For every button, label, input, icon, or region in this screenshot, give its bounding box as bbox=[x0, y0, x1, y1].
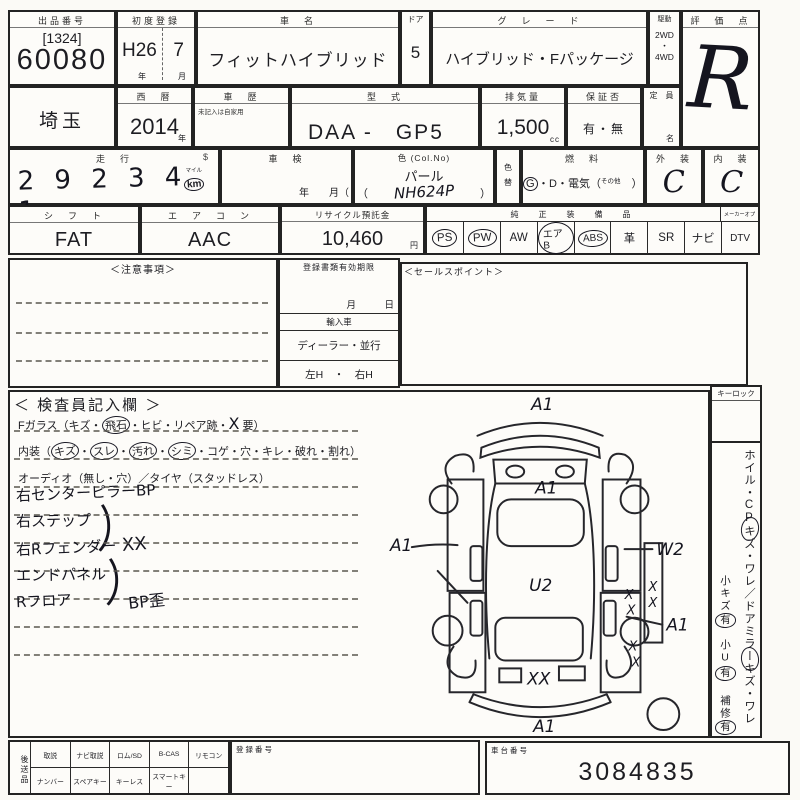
grade-value: ハイブリッド・Fパッケージ bbox=[433, 48, 646, 69]
equipment-label: 純 正 装 備 品 bbox=[427, 207, 720, 221]
interior-line-separator: ・ bbox=[317, 446, 328, 458]
grade-cell: グ レ ー ド ハイブリッド・Fパッケージ bbox=[431, 10, 648, 86]
drivetrain-2wd: 2WD bbox=[650, 30, 679, 40]
interior-damage-item: キレ bbox=[262, 446, 284, 458]
import-car-label: 輸入車 bbox=[280, 313, 398, 330]
dealer-parallel-label: ディーラー・並行 bbox=[280, 330, 398, 360]
color-label: 色 (Col.No) bbox=[355, 150, 493, 164]
body-left-edge bbox=[486, 483, 495, 658]
auction-number-label: 出品番号 bbox=[10, 12, 114, 28]
damage-note-3: 右Rフェンダー bbox=[16, 535, 117, 560]
shift-label: シ フ ト bbox=[10, 207, 138, 223]
aircon-label: エ ア コ ン bbox=[142, 207, 278, 223]
accessory-empty bbox=[188, 768, 228, 793]
headlight-right bbox=[556, 466, 574, 478]
front-bumper-outer bbox=[477, 423, 602, 436]
accessory-スマートキー: スマートキー bbox=[149, 768, 189, 793]
equipment-item-SR: SR bbox=[647, 222, 684, 254]
first-registration-cell: 初度登録 H26 7 年 月 bbox=[116, 10, 196, 86]
equipment-label: AW bbox=[510, 232, 528, 244]
first-registration-label: 初度登録 bbox=[118, 12, 194, 28]
wheel-front-right bbox=[621, 485, 649, 513]
prefecture-cell: 埼玉 bbox=[8, 86, 116, 148]
color-change-top: 色 bbox=[497, 162, 519, 173]
windshield bbox=[497, 499, 583, 546]
sales-point-box: ＜セールスポイント＞ bbox=[400, 262, 748, 386]
x-mark-quarter-1: X bbox=[628, 640, 639, 655]
interior-line-prefix: 内装（ bbox=[18, 446, 51, 458]
small-note-label: 小キズ bbox=[719, 575, 731, 613]
accessories-box: 後送品 取説ナビ取説ロム/SDB-CASリモコン ナンバースペアキーキーレススマ… bbox=[8, 740, 230, 795]
shift-cell: シ フ ト FAT bbox=[8, 205, 140, 255]
drivetrain-dot: ・ bbox=[650, 40, 679, 52]
drivetrain-4wd: 4WD bbox=[650, 52, 679, 62]
shaken-units: 年 月（ bbox=[299, 184, 349, 199]
interior-line-separator: ・ bbox=[229, 446, 240, 458]
keylock-label: キーロック bbox=[712, 387, 760, 401]
score-cell: 評 価 点 R bbox=[681, 10, 760, 148]
notice-dashed-line bbox=[16, 302, 268, 304]
fuel-gasoline-circled: G bbox=[523, 177, 539, 192]
accessory-B-CAS: B-CAS bbox=[149, 742, 189, 767]
interior-line-separator: ・ bbox=[118, 446, 129, 458]
headlight-left bbox=[506, 466, 524, 478]
notice-dashed-line bbox=[16, 332, 268, 334]
first-reg-month: 7 bbox=[173, 40, 184, 62]
year-cell: 西 暦 2014 年 bbox=[116, 86, 193, 148]
first-reg-era: H26 bbox=[122, 40, 157, 62]
car-damage-diagram: A1 A1 A1 W2 U2 A1 XX A1 X X X X X X bbox=[387, 394, 717, 738]
right-front-window-slot bbox=[606, 546, 618, 581]
x-mark-quarter-2: X bbox=[631, 655, 642, 670]
recycle-fee-unit: 円 bbox=[410, 240, 419, 251]
equipment-item-ナビ: ナビ bbox=[684, 222, 721, 254]
color-code-handwritten: NH624P bbox=[393, 181, 454, 202]
interior-line-separator: ・ bbox=[79, 446, 90, 458]
fuel-label: 燃 料 bbox=[523, 150, 643, 165]
accessory-ロム/SD: ロム/SD bbox=[109, 742, 149, 767]
body-right-edge bbox=[585, 483, 594, 658]
accessory-リモコン: リモコン bbox=[188, 742, 228, 767]
small-note-mark-circled: 有 bbox=[715, 612, 737, 628]
history-cell: 車 歴 未記入は自家用 bbox=[193, 86, 290, 148]
warranty-value: 有・無 bbox=[568, 120, 640, 137]
left-rear-window-slot bbox=[470, 601, 482, 636]
interior-label: 内 装 bbox=[705, 150, 758, 165]
right-rear-window-slot bbox=[604, 601, 616, 636]
inspector-dashed-line bbox=[14, 626, 358, 628]
mark-floor-u2: U2 bbox=[529, 575, 552, 595]
chassis-number: 3084835 bbox=[487, 758, 788, 787]
inspector-dashed-line bbox=[14, 654, 358, 656]
rear-window bbox=[495, 618, 582, 661]
mark-rear-bumper: A1 bbox=[532, 716, 555, 736]
history-label: 車 歴 bbox=[195, 88, 288, 104]
accessories-row-1: 取説ナビ取説ロム/SDB-CASリモコン bbox=[31, 742, 228, 768]
year-label: 西 暦 bbox=[118, 88, 191, 104]
recycle-fee-value: 10,460 bbox=[282, 228, 423, 251]
x-mark-door-1: X bbox=[624, 588, 635, 603]
drivetrain-label: 駆動 bbox=[650, 12, 679, 24]
accessory-取説: 取説 bbox=[31, 742, 70, 767]
damage-note-4: エンドパネル bbox=[16, 563, 106, 586]
equipment-item-ABS: ABS bbox=[574, 222, 611, 254]
door-cell: ドア 5 bbox=[400, 10, 431, 86]
wheel-mirror-note-vertical: ホイル・CPキズ・ワレ／ドアミラーキズ・ワレ bbox=[741, 449, 757, 731]
x-mark-door-2: X bbox=[626, 604, 637, 619]
damage-note-2: 右ステップ bbox=[16, 509, 91, 531]
color-change-cell: 色 替 bbox=[495, 148, 521, 205]
capacity-cell: 定 員 名 bbox=[642, 86, 681, 148]
equipment-header: 純 正 装 備 品 メーカーオプ bbox=[427, 207, 758, 222]
registration-number-box: 登録番号 bbox=[230, 740, 480, 795]
model-code-label: 型 式 bbox=[292, 88, 478, 104]
mark-right-quarter: A1 bbox=[665, 615, 688, 635]
displacement-label: 排気量 bbox=[482, 88, 564, 104]
document-validity-box: 登録書類有効期限 月 日 輸入車 ディーラー・並行 左H ・ 右H bbox=[278, 258, 400, 388]
year-unit: 年 bbox=[178, 133, 187, 144]
small-note-小キズ: 小キズ有 bbox=[715, 575, 736, 635]
x-mark-sill-2: X bbox=[647, 596, 658, 611]
fuel-cell: 燃 料 G・D・電気（その他 ） bbox=[521, 148, 645, 205]
equipment-items-row: PSPWAWエアBABS革SRナビDTV bbox=[427, 222, 758, 254]
accessory-ナビ取説: ナビ取説 bbox=[70, 742, 110, 767]
equipment-item-革: 革 bbox=[610, 222, 647, 254]
interior-line-separator: ・ bbox=[157, 446, 168, 458]
sales-point-label: ＜セールスポイント＞ bbox=[402, 264, 746, 278]
notice-dashed-line bbox=[16, 360, 268, 362]
color-cell: 色 (Col.No) パール （ NH624P ） bbox=[353, 148, 495, 205]
equipment-label-circled: PW bbox=[467, 228, 496, 247]
prefecture: 埼玉 bbox=[10, 106, 114, 133]
wheel-note-column: ホイル・CPキズ・ワレ／ドアミラーキズ・ワレ 小キズ有小U有補修有 bbox=[710, 443, 762, 738]
interior-line-suffix: ） bbox=[350, 446, 361, 458]
equipment-cell: 純 正 装 備 品 メーカーオプ PSPWAWエアBABS革SRナビDTV bbox=[425, 205, 760, 255]
wheel-rear-left bbox=[433, 616, 463, 646]
accessory-キーレス: キーレス bbox=[109, 768, 149, 793]
chassis-number-box: 車台番号 3084835 bbox=[485, 741, 790, 795]
first-reg-unit-month: 月 bbox=[178, 71, 186, 82]
car-name-label: 車 名 bbox=[198, 12, 398, 28]
auction-sheet: 出品番号 [1324] 60080 初度登録 H26 7 年 月 車 名 フィッ… bbox=[0, 0, 800, 800]
paren-close: ） bbox=[480, 185, 491, 201]
front-bumper-inner bbox=[480, 436, 599, 458]
accessory-ナンバー: ナンバー bbox=[31, 768, 70, 793]
month-day-labels: 月 日 bbox=[346, 297, 394, 311]
small-note-mark-circled: 有 bbox=[715, 719, 737, 735]
validity-date-row: 月 日 bbox=[280, 273, 398, 313]
fender-rear-left bbox=[447, 647, 475, 678]
interior-line-separator: ・ bbox=[284, 446, 295, 458]
equipment-label: ナビ bbox=[692, 230, 715, 246]
left-a1-pointer bbox=[412, 544, 458, 547]
warranty-label: 保証否 bbox=[568, 88, 640, 104]
interior-grade-cell: 内 装 C bbox=[703, 148, 760, 205]
equipment-item-PW: PW bbox=[463, 222, 500, 254]
fender-rear-right bbox=[606, 647, 631, 678]
mark-hood: A1 bbox=[534, 477, 557, 497]
aircon-cell: エ ア コ ン AAC bbox=[140, 205, 280, 255]
left-front-panel bbox=[448, 480, 484, 591]
notice-label: ＜注意事項＞ bbox=[10, 261, 276, 276]
x-mark-sill-1: X bbox=[647, 580, 658, 595]
auction-number-cell: 出品番号 [1324] 60080 bbox=[8, 10, 116, 86]
color-change-bottom: 替 bbox=[497, 177, 519, 188]
door-label: ドア bbox=[402, 12, 429, 25]
divider bbox=[162, 28, 163, 80]
small-note-mark-circled: 有 bbox=[715, 665, 737, 681]
interior-line-separator: ・ bbox=[251, 446, 262, 458]
aircon-value: AAC bbox=[142, 229, 278, 252]
mileage-unit-mile: マイル bbox=[184, 166, 204, 174]
notice-box: ＜注意事項＞ bbox=[8, 258, 278, 388]
drivetrain-cell: 駆動 2WD ・ 4WD bbox=[648, 10, 681, 86]
auction-number: 60080 bbox=[10, 46, 114, 75]
document-validity-label: 登録書類有効期限 bbox=[280, 260, 398, 273]
equipment-item-PS: PS bbox=[427, 222, 463, 254]
chassis-number-label: 車台番号 bbox=[487, 743, 788, 756]
left-front-window-slot bbox=[470, 546, 482, 581]
rear-light-right bbox=[559, 666, 585, 680]
capacity-label: 定 員 bbox=[644, 88, 679, 101]
warranty-cell: 保証否 有・無 bbox=[566, 86, 642, 148]
interior-grade-handwritten: C bbox=[704, 164, 758, 201]
damage-note-5: Rフロア bbox=[16, 589, 72, 612]
equipment-label-circled: PS bbox=[432, 228, 458, 247]
equipment-label: 革 bbox=[624, 230, 636, 246]
equipment-label-circled: エアB bbox=[537, 221, 575, 255]
equipment-label-circled: ABS bbox=[577, 229, 608, 248]
color-code-row: （ NH624P ） bbox=[355, 183, 493, 201]
handle-position-label: 左H ・ 右H bbox=[280, 360, 398, 388]
capacity-unit: 名 bbox=[666, 133, 675, 144]
car-name-cell: 車 名 フィットハイブリッド bbox=[196, 10, 400, 86]
inspector-dashed-line bbox=[14, 458, 358, 460]
exterior-grade-cell: 外 装 C bbox=[645, 148, 703, 205]
shaken-label: 車 検 bbox=[222, 150, 351, 165]
wheel-front-left bbox=[430, 485, 458, 513]
car-name: フィットハイブリッド bbox=[198, 46, 398, 71]
shift-value: FAT bbox=[10, 229, 138, 252]
rear-light-left bbox=[499, 668, 521, 682]
mileage-cell: 走 行 $ 2 9 2 3 4 1 マイル km bbox=[8, 148, 220, 205]
interior-damage-item: コゲ bbox=[207, 446, 229, 458]
rear-bumper-inner bbox=[473, 694, 606, 707]
fuel-other-label: その他 bbox=[601, 178, 621, 185]
accessory-スペアキー: スペアキー bbox=[70, 768, 110, 793]
interior-damage-item: 破れ bbox=[295, 446, 317, 458]
mark-left-door: A1 bbox=[389, 535, 412, 555]
accessories-table: 取説ナビ取説ロム/SDB-CASリモコン ナンバースペアキーキーレススマートキー bbox=[31, 742, 228, 793]
interior-damage-item: 穴 bbox=[240, 446, 251, 458]
equipment-label: DTV bbox=[730, 233, 750, 244]
mileage-unit-group: マイル km bbox=[184, 166, 204, 192]
fuel-value-row: G・D・電気（その他 ） bbox=[523, 175, 643, 191]
interior-damage-item: 割れ bbox=[328, 446, 350, 458]
score-label: 評 価 点 bbox=[683, 12, 758, 28]
mark-front-bumper: A1 bbox=[530, 394, 553, 414]
grade-label: グ レ ー ド bbox=[433, 12, 646, 28]
displacement-unit: cc bbox=[550, 135, 560, 144]
recycle-fee-cell: リサイクル預託金 10,460 円 bbox=[280, 205, 425, 255]
equipment-item-DTV: DTV bbox=[721, 222, 758, 254]
mileage-unit-km-circled: km bbox=[183, 177, 204, 191]
door-count: 5 bbox=[402, 43, 429, 63]
send-later-label: 後送品 bbox=[10, 742, 31, 793]
history-note: 未記入は自家用 bbox=[195, 104, 288, 116]
small-note-label: 小U bbox=[719, 639, 731, 666]
inspector-box: ＜ 検査員記入欄 ＞ Fガラス（キズ・飛石・ヒビ・リペア跡・X 要） 内装（キズ… bbox=[8, 390, 710, 738]
fuel-options: ・D・電気（ bbox=[538, 178, 601, 190]
rear-bumper-outer bbox=[469, 694, 610, 717]
keylock-box: キーロック bbox=[710, 385, 762, 443]
note-mark-bp: BP歪 bbox=[127, 586, 166, 614]
score-grade-handwritten: R bbox=[681, 34, 760, 124]
recycle-fee-label: リサイクル預託金 bbox=[282, 207, 423, 222]
registration-number-label: 登録番号 bbox=[232, 742, 478, 755]
mileage-sign: $ bbox=[203, 152, 208, 162]
mark-right-side-w2: W2 bbox=[656, 539, 683, 559]
mark-rear-panel-xx: XX bbox=[526, 668, 551, 688]
interior-line-separator: ・ bbox=[196, 446, 207, 458]
exterior-grade-handwritten: C bbox=[646, 163, 702, 202]
equipment-item-エアB: エアB bbox=[537, 222, 574, 254]
stamp-circle bbox=[647, 698, 679, 730]
small-note-小U: 小U有 bbox=[715, 639, 736, 699]
equipment-item-AW: AW bbox=[500, 222, 537, 254]
fuel-paren-close: ） bbox=[632, 178, 643, 190]
inspector-dashed-line bbox=[14, 430, 358, 432]
model-code-cell: 型 式 DAA - GP5 bbox=[290, 86, 480, 148]
accessories-row-2: ナンバースペアキーキーレススマートキー bbox=[31, 768, 228, 793]
displacement-cell: 排気量 1,500 cc bbox=[480, 86, 566, 148]
model-code: DAA - GP5 bbox=[292, 116, 478, 146]
first-reg-unit-year: 年 bbox=[138, 71, 146, 82]
left-door-diagonal-mark bbox=[438, 571, 468, 603]
shaken-cell: 車 検 年 月（ bbox=[220, 148, 353, 205]
small-note-label: 補修 bbox=[719, 695, 731, 720]
paren-open: （ bbox=[357, 185, 368, 201]
equipment-label: SR bbox=[658, 232, 674, 244]
maker-option-label: メーカーオプ bbox=[720, 207, 758, 221]
